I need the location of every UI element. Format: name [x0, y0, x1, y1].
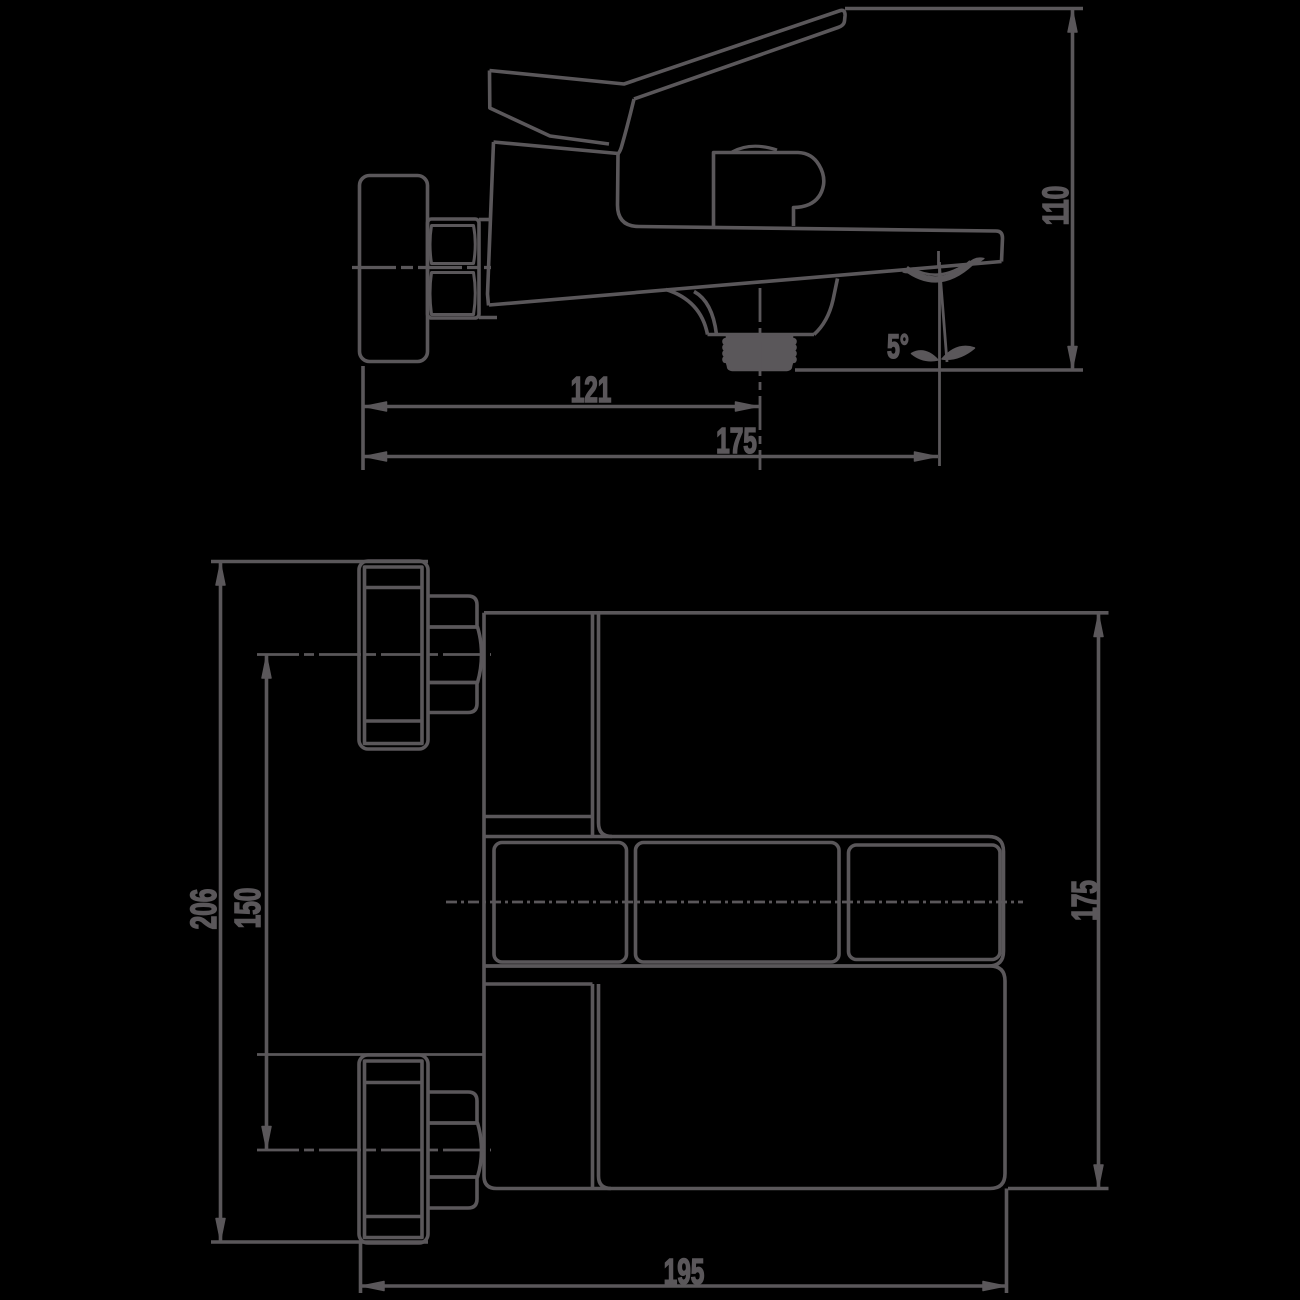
svg-text:110: 110	[1035, 186, 1076, 225]
svg-text:175: 175	[716, 420, 757, 461]
svg-text:195: 195	[664, 1251, 705, 1292]
svg-text:121: 121	[571, 369, 612, 410]
svg-text:206: 206	[183, 889, 224, 930]
svg-text:150: 150	[227, 888, 268, 929]
svg-text:175: 175	[1064, 880, 1105, 921]
svg-text:5°: 5°	[887, 329, 909, 366]
